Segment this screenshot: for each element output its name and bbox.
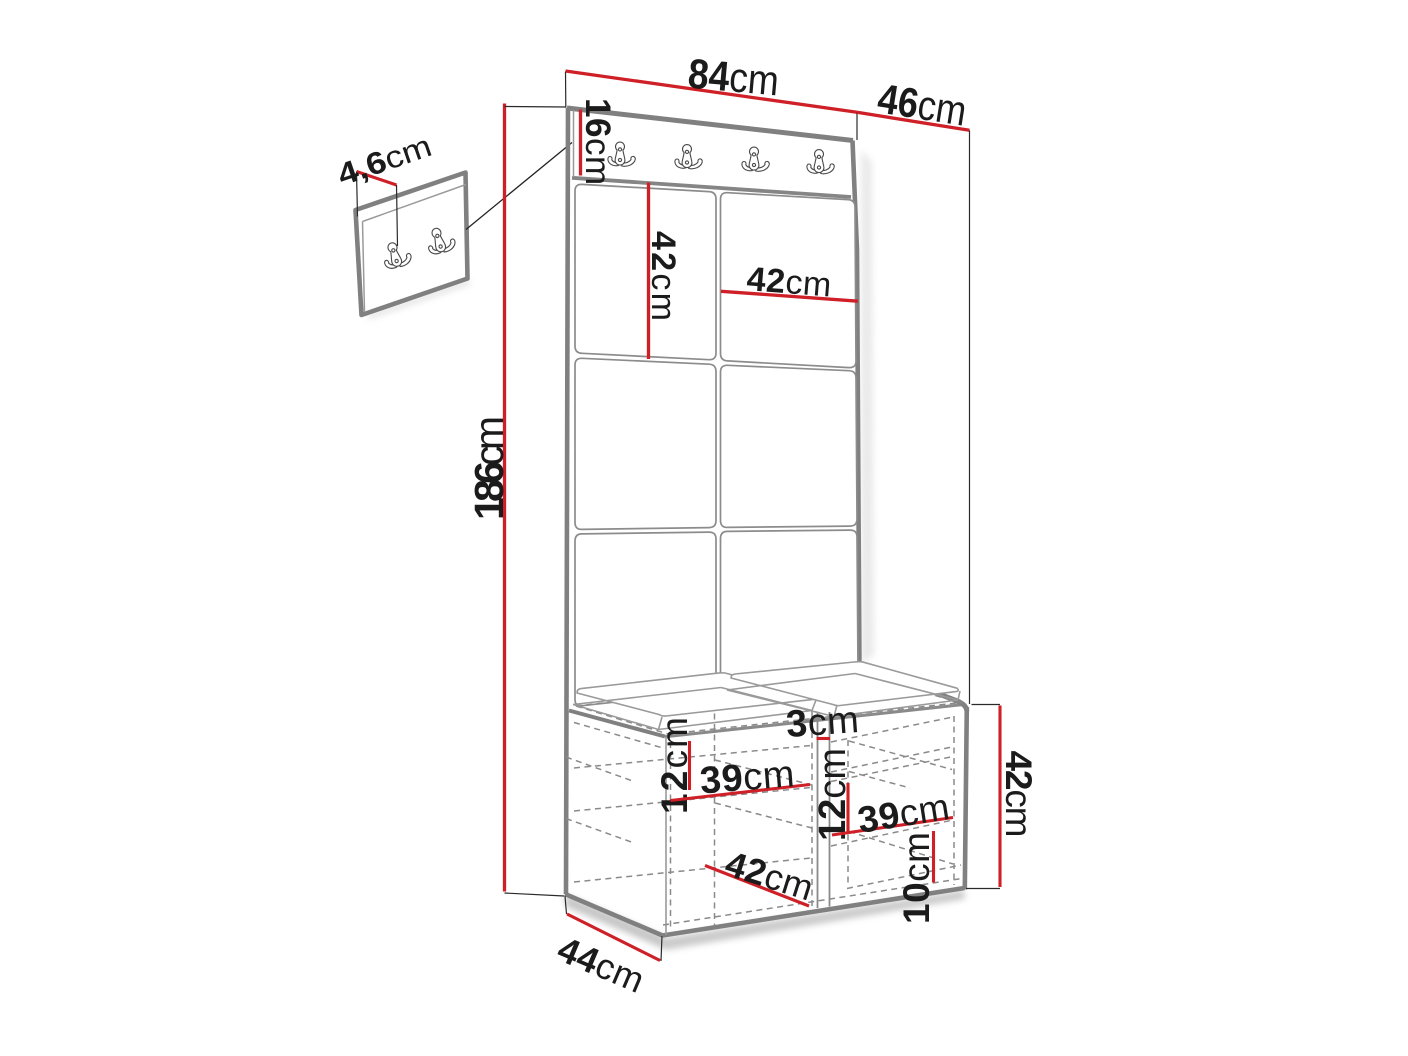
svg-text:42cm: 42cm (745, 260, 833, 305)
svg-text:39cm: 39cm (698, 753, 796, 802)
svg-text:186cm: 186cm (466, 416, 512, 520)
svg-text:3cm: 3cm (785, 699, 861, 746)
svg-text:16cm: 16cm (578, 98, 617, 186)
svg-text:10cm: 10cm (896, 832, 937, 924)
svg-text:84cm: 84cm (686, 50, 781, 105)
svg-text:42cm: 42cm (644, 231, 682, 321)
svg-text:42cm: 42cm (998, 751, 1039, 838)
svg-text:12cm: 12cm (812, 748, 854, 841)
